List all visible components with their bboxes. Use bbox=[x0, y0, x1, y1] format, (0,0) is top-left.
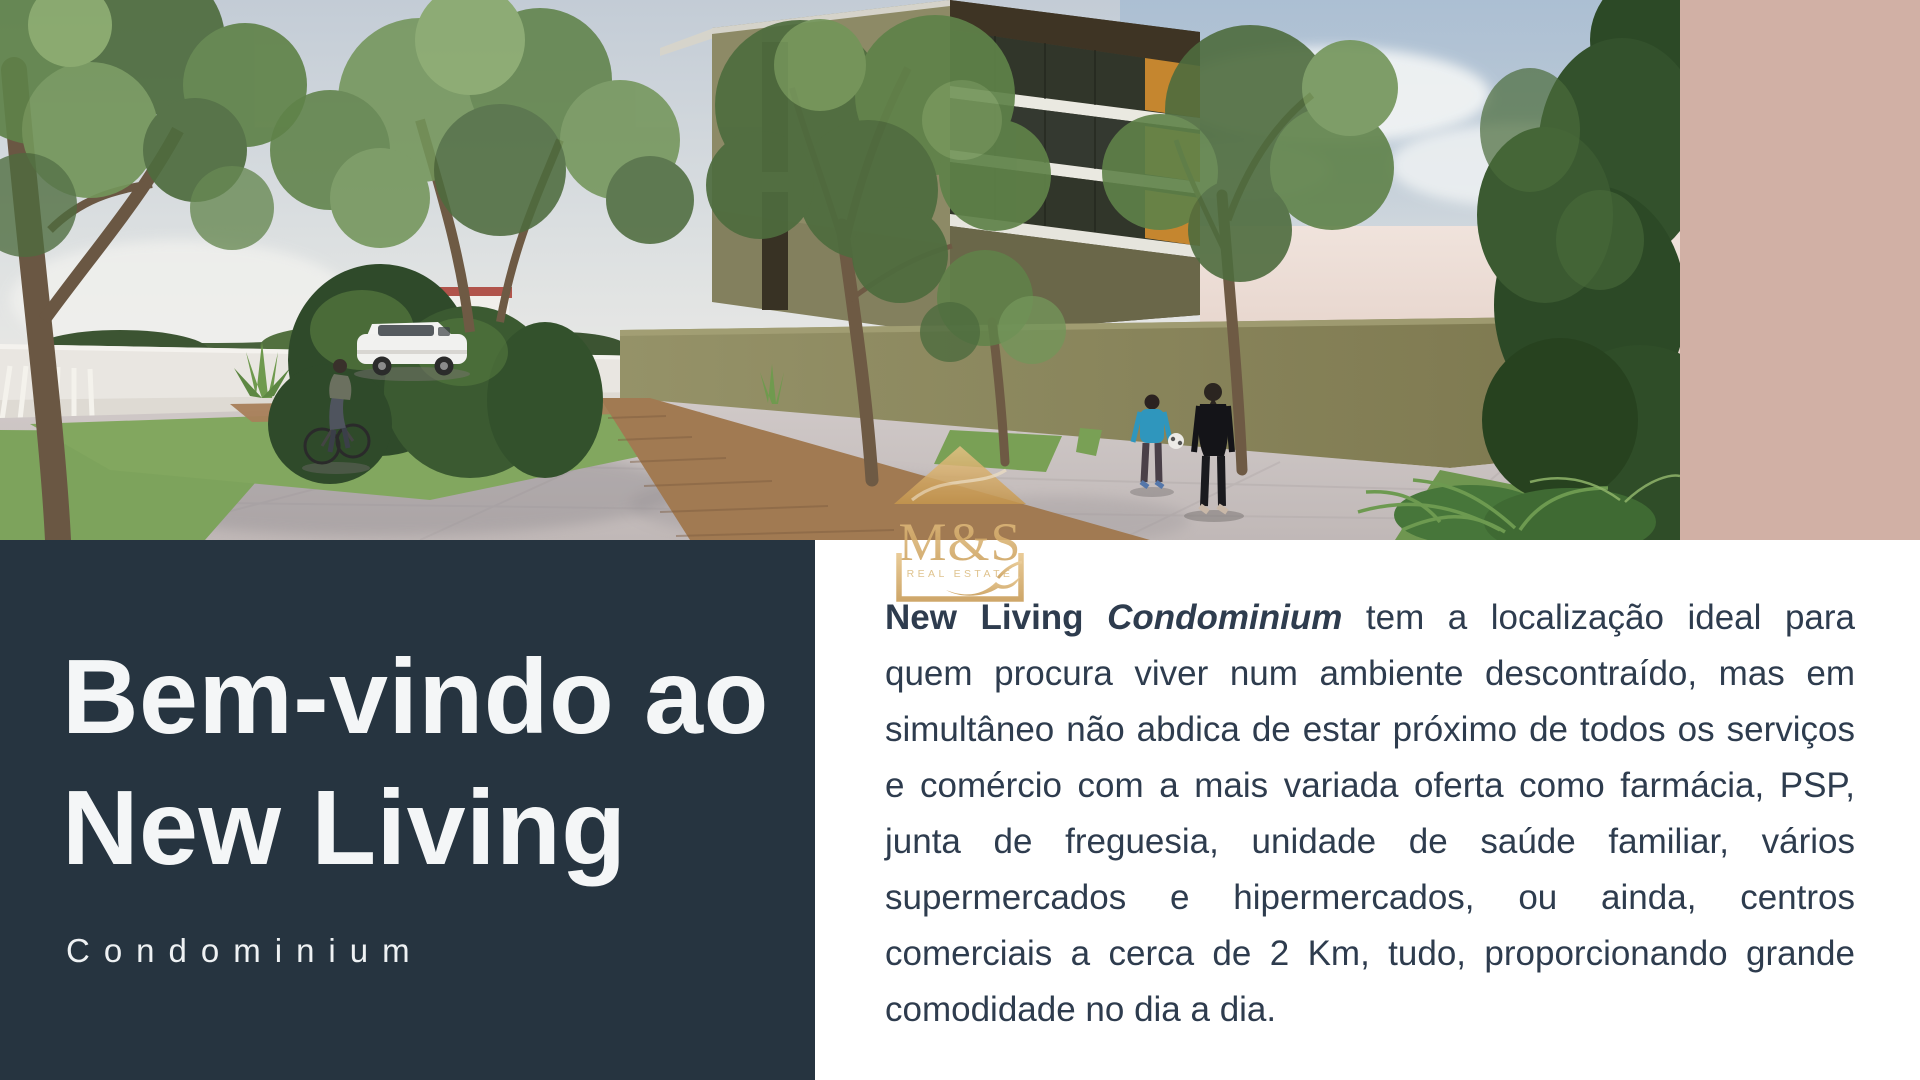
subtitle: Condominium bbox=[66, 932, 424, 970]
ms-real-estate-logo: M&S REAL ESTATE bbox=[886, 440, 1034, 612]
description-body: tem a localização ideal para quem procur… bbox=[885, 598, 1855, 1029]
description-lead-italic: Condominium bbox=[1107, 598, 1342, 637]
title-line-2: New Living bbox=[62, 769, 627, 887]
presentation-slide: Bem-vindo aoNew Living Condominium New L… bbox=[0, 0, 1920, 1080]
logo-tagline: REAL ESTATE bbox=[907, 568, 1014, 580]
title-panel: Bem-vindo aoNew Living Condominium bbox=[0, 540, 815, 1080]
page-title: Bem-vindo aoNew Living bbox=[62, 632, 769, 894]
title-line-1: Bem-vindo ao bbox=[62, 638, 769, 756]
ms-logo-graphic: M&S REAL ESTATE bbox=[886, 440, 1034, 612]
description-text: New Living Condominium tem a localização… bbox=[885, 590, 1855, 1038]
hero-photo bbox=[0, 0, 1680, 540]
description-panel: New Living Condominium tem a localização… bbox=[815, 540, 1920, 1080]
condominium-render bbox=[0, 0, 1680, 540]
logo-monogram: M&S bbox=[898, 512, 1021, 572]
right-bushes bbox=[1477, 0, 1680, 540]
logo-roof-icon bbox=[894, 446, 1026, 504]
pink-accent-strip bbox=[1680, 0, 1920, 540]
